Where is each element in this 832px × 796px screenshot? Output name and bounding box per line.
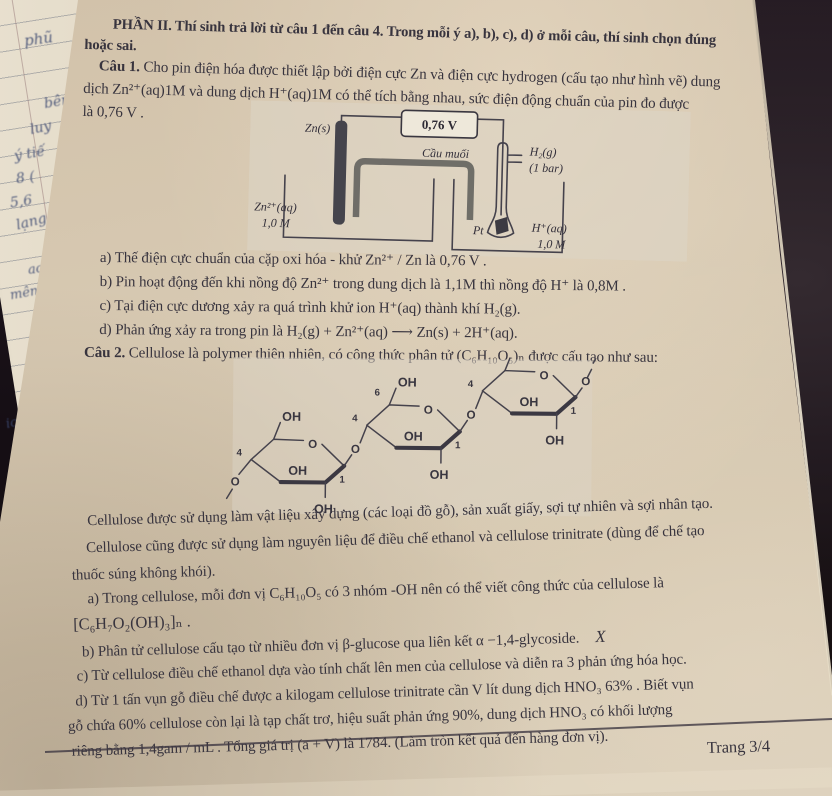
q1-option-d: d) Phản ứng xảy ra trong pin là H₂(g) + … [99, 322, 517, 343]
part-ii-header-cont: hoặc sai. [84, 37, 137, 55]
ch2oh-label: OH [282, 410, 301, 424]
q1-option-a: a) Thế điện cực chuẩn của cặp oxi hóa - … [100, 250, 487, 271]
lower-oh-label: OH [430, 468, 449, 482]
ring-oh-label: OH [288, 464, 307, 478]
carbon-4-label: 4 [352, 413, 358, 424]
section-q2-text-and-options: Cellulose được sử dụng làm vật liệu xây … [0, 488, 832, 796]
carbon-1-label: 1 [455, 440, 461, 451]
h-solution-label: H⁺(aq) [531, 221, 567, 236]
galvanic-cell-diagram: 0,76 V Zn(s) Cầu muối H₂(g) (1 bar) Zn²⁺… [247, 100, 691, 261]
pt-label: Pt [472, 223, 485, 237]
carbon-6-label: 6 [374, 387, 380, 398]
handwriting-fragment: 8 ( [15, 169, 36, 187]
zinc-electrode-label: Zn(s) [305, 121, 331, 136]
handwriting-fragment: 5,6 [9, 193, 33, 212]
voltmeter-reading: 0,76 V [422, 117, 458, 133]
ring-oxygen-label: O [424, 404, 433, 417]
exam-paper-sheet: PHẦN II. Thí sinh trả lời từ câu 1 đến c… [0, 0, 832, 796]
terminal-o-label: O [231, 475, 240, 488]
zn-solution-label: Zn²⁺(aq) [254, 199, 297, 214]
q1-option-b: b) Pin hoạt động đến khi nồng độ Zn²⁺ tr… [100, 274, 626, 296]
terminal-o-label: O [581, 375, 590, 388]
pressure-label: (1 bar) [529, 161, 563, 176]
glycosidic-o-label: O [467, 409, 476, 422]
carbon-4-label: 4 [236, 448, 242, 459]
page-number: Trang 3/4 [707, 737, 771, 758]
zn-concentration-label: 1,0 M [262, 216, 291, 231]
ring-oxygen-label: O [539, 369, 548, 382]
part-ii-header: PHẦN II. Thí sinh trả lời từ câu 1 đến c… [113, 17, 717, 50]
h2-gas-label: H₂(g) [529, 145, 557, 160]
h-concentration-label: 1,0 M [537, 237, 566, 252]
question-1-label: Câu 1. [99, 58, 140, 75]
section-header-and-q1: PHẦN II. Thí sinh trả lời từ câu 1 đến c… [0, 0, 832, 271]
glycosidic-o-label: O [351, 443, 360, 456]
ring-oh-label: OH [520, 395, 539, 409]
cellulose-structure-diagram: O O OH 4 OH 1 OH O O OH 6 [222, 355, 601, 518]
cellulose-paragraph-line2: Cellulose cũng được sử dụng làm nguyên l… [86, 523, 705, 558]
cellulose-paragraph-line3: thuốc súng không khói). [72, 564, 216, 585]
q1-option-c: c) Tại điện cực dương xảy ra quá trình k… [99, 298, 520, 319]
ch2oh-label: OH [398, 375, 417, 389]
carbon-1-label: 1 [571, 406, 577, 417]
handwritten-x-mark: X [595, 627, 606, 646]
section-q1-options-and-q2: a) Thế điện cực chuẩn của cặp oxi hóa - … [0, 247, 832, 522]
salt-bridge-label: Cầu muối [422, 146, 469, 161]
question-2-label: Câu 2. [84, 345, 125, 361]
q2-option-a-formula: [C₆H₇O₂(OH)₃]ₙ . [73, 612, 191, 634]
photo-of-exam-page: phũ bên luy ý tiế 8 ( 5,6 lạng ac mên ic… [0, 0, 832, 796]
ring-oh-label: OH [404, 429, 423, 443]
question-1-text-line3: là 0,76 V . [82, 104, 144, 123]
lower-oh-label: OH [545, 433, 564, 447]
carbon-4-label: 4 [468, 379, 474, 390]
ring-oxygen-label: O [308, 438, 317, 451]
carbon-1-label: 1 [339, 475, 345, 486]
